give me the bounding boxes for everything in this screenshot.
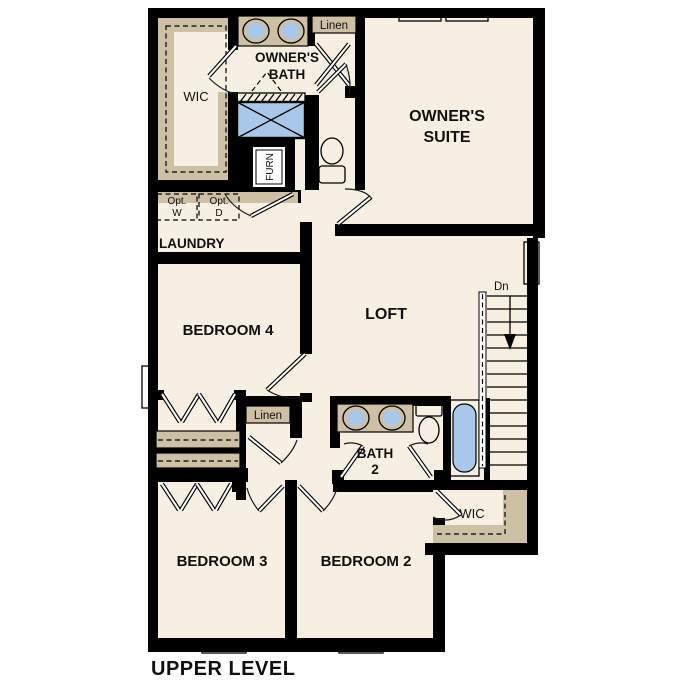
- opt-dryer-letter: D: [215, 208, 222, 219]
- opt-washer-letter: W: [172, 208, 182, 219]
- floor-plan: FURN Opt. W Opt. D: [0, 0, 687, 687]
- owners-suite-label2: SUITE: [423, 129, 470, 146]
- bedroom4-label: BEDROOM 4: [183, 322, 275, 339]
- opt-washer-label: Opt.: [168, 196, 187, 207]
- linen-top-label: Linen: [320, 20, 348, 32]
- loft-label: LOFT: [365, 306, 407, 323]
- owners-suite-label: OWNER'S: [409, 108, 485, 125]
- bath2-label2: 2: [371, 462, 379, 477]
- stairs-dn-label: Dn: [494, 281, 509, 293]
- owners-bath-label: OWNER'S: [255, 50, 319, 65]
- wic-top-label: WIC: [183, 89, 208, 104]
- owners-bath-vanity: [238, 16, 308, 46]
- owners-bath-label2: BATH: [269, 67, 306, 82]
- bath2-label: BATH: [357, 446, 394, 461]
- linen-mid-label: Linen: [254, 410, 282, 422]
- bathtub-icon: [450, 400, 479, 476]
- bedroom2-label: BEDROOM 2: [321, 553, 412, 570]
- laundry-label: LAUNDRY: [159, 236, 225, 251]
- opt-dryer-label: Opt.: [210, 196, 229, 207]
- wic-bottom-label: WIC: [459, 506, 484, 521]
- furnace-closet: FURN: [252, 146, 286, 188]
- furnace-label: FURN: [265, 153, 276, 181]
- bedroom3-label: BEDROOM 3: [177, 553, 268, 570]
- page-title: UPPER LEVEL: [151, 658, 295, 680]
- floor-plan-canvas: FURN Opt. W Opt. D: [0, 0, 687, 687]
